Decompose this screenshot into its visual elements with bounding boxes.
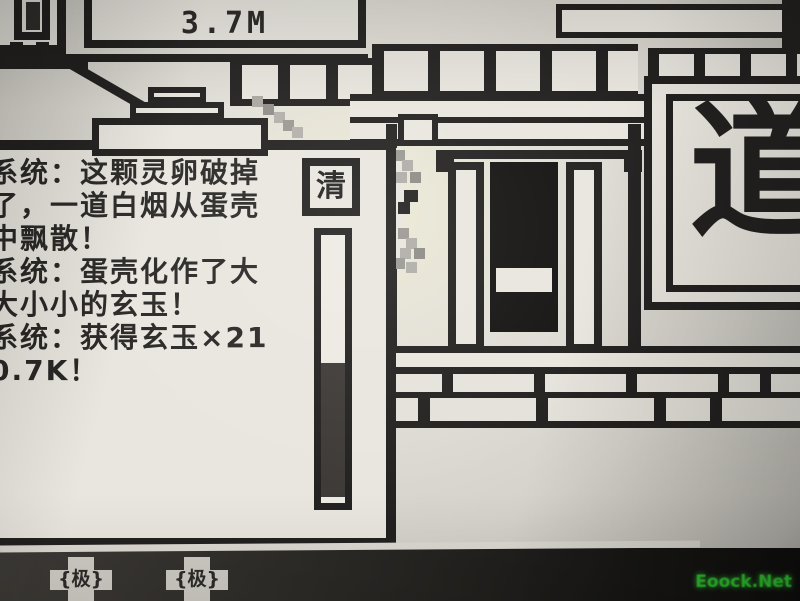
facade-wall-line-right: [628, 124, 641, 352]
brick-row-2: [390, 398, 800, 428]
ornament-core: [26, 2, 40, 30]
scrollbar-track[interactable]: [314, 228, 352, 510]
brick-row-1: [390, 374, 800, 398]
message-line: 大小小的玄玉！: [0, 288, 334, 321]
message-log: 系统：这颗灵卵破掉 了，一道白烟从蛋壳 中飘散！ 系统：蛋壳化作了大 大小小的玄…: [0, 156, 334, 387]
badge-ji-left[interactable]: {极}: [50, 557, 112, 601]
scrollbar-thumb[interactable]: [321, 363, 345, 497]
crenellation-row-center: [372, 44, 638, 98]
door-sill: [496, 268, 552, 292]
message-line: 系统：获得玄玉×21: [0, 321, 334, 354]
door-canopy: [436, 150, 642, 159]
message-panel: 系统：这颗灵卵破掉 了，一道白烟从蛋壳 中飘散！ 系统：蛋壳化作了大 大小小的玄…: [0, 140, 396, 548]
roof-band-top-right: [556, 4, 790, 38]
message-line: 系统：蛋壳化作了大: [0, 255, 334, 288]
message-line: 了，一道白烟从蛋壳: [0, 189, 334, 222]
game-screen: 3.7M 道: [0, 0, 800, 601]
clear-button[interactable]: 清: [302, 158, 360, 216]
message-line: 0.7K！: [0, 354, 334, 387]
message-line: 中飘散！: [0, 222, 334, 255]
lower-beam: [390, 346, 800, 374]
badge-ji-right[interactable]: {极}: [166, 557, 228, 601]
roof-step-1: [130, 102, 224, 119]
roof-step-2: [148, 87, 206, 103]
pillar-left: [448, 162, 484, 352]
counter-value: 3.7M: [92, 0, 358, 41]
doorway: [490, 162, 558, 332]
roof-plank: [92, 118, 268, 156]
footer-bar: [0, 548, 800, 601]
badge-label: {极}: [166, 557, 228, 601]
watermark: Eoock.Net: [688, 572, 792, 596]
badge-label: {极}: [50, 557, 112, 601]
plaque-inner-frame: 道: [666, 94, 800, 292]
pillar-right: [566, 162, 602, 352]
message-line: 系统：这颗灵卵破掉: [0, 156, 334, 189]
plaque-character: 道: [689, 94, 800, 257]
counter-sign: 3.7M: [84, 0, 366, 48]
small-window: [398, 114, 438, 146]
